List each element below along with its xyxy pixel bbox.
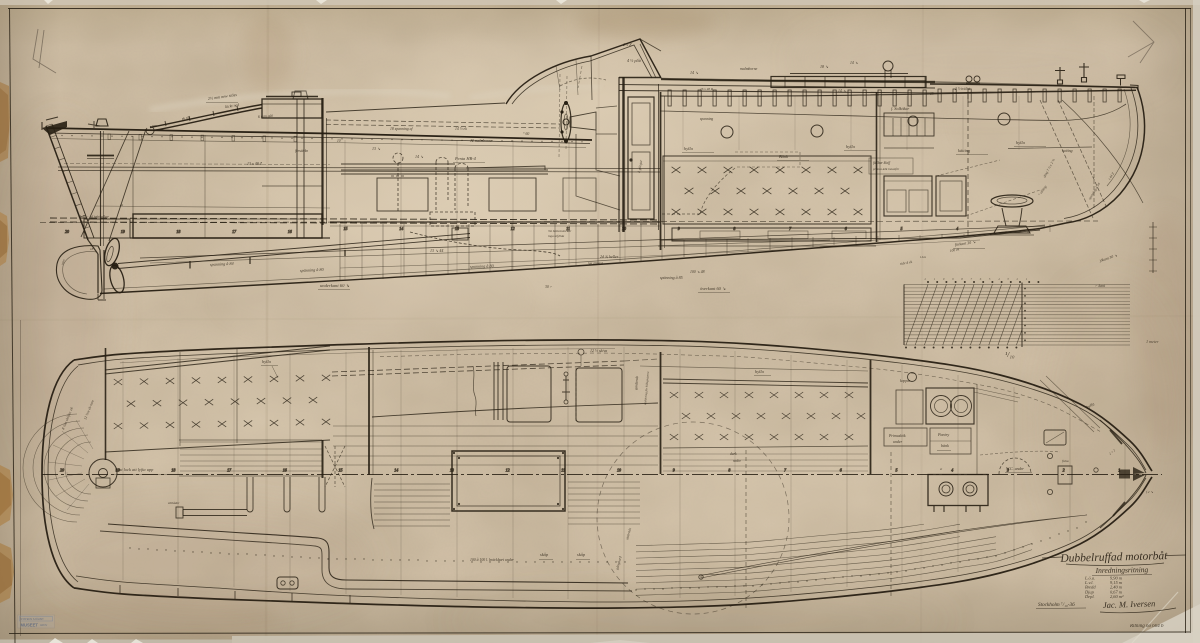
svg-text:10: 10	[337, 139, 341, 143]
svg-text:18: 18	[176, 229, 180, 234]
svg-text:bänk: bänk	[941, 443, 949, 448]
svg-text:14 ↘: 14 ↘	[415, 154, 424, 159]
svg-text:ARKIV: ARKIV	[40, 624, 48, 627]
svg-text:Inredningsritning: Inredningsritning	[1095, 565, 1149, 575]
svg-text:14 ½ ek: 14 ½ ek	[455, 127, 467, 131]
svg-text:kätting: kätting	[958, 148, 971, 153]
svg-text:primus-kök innanför: primus-kök innanför	[872, 167, 900, 171]
svg-text:12: 12	[506, 468, 510, 473]
svg-text:MUSEET: MUSEET	[21, 623, 39, 628]
svg-text:20: 20	[60, 468, 64, 473]
svg-text:2: 2	[1063, 468, 1065, 473]
svg-text:spanning: spanning	[700, 117, 713, 121]
svg-text:13: 13	[930, 92, 934, 96]
svg-text:malmborne: malmborne	[740, 67, 758, 71]
svg-text:8: 8	[733, 226, 735, 231]
svg-text:spanning å 80: spanning å 80	[470, 263, 495, 269]
svg-text:100 ↘ 48: 100 ↘ 48	[690, 270, 705, 274]
svg-text:15: 15	[339, 468, 343, 473]
svg-text:lga ólipted: lga ólipted	[588, 261, 603, 265]
svg-text:3st bottenstockar: 3st bottenstockar	[548, 229, 572, 233]
svg-text:13 x 48 Z: 13 x 48 Z	[247, 161, 263, 166]
svg-text:16: 16	[283, 468, 287, 473]
svg-text:14: 14	[394, 468, 398, 473]
svg-text:16: 16	[288, 229, 292, 234]
svg-text:vatting: vatting	[1062, 149, 1073, 153]
svg-text:14 ↘: 14 ↘	[838, 89, 846, 93]
svg-text:13 ↘: 13 ↘	[372, 146, 381, 151]
svg-text:Primuskök: Primuskök	[888, 434, 906, 438]
svg-text:Löst lock att lyfta upp: Löst lock att lyfta upp	[114, 467, 154, 472]
svg-text:l:10 ⌐ af tvärbalkar: l:10 ⌐ af tvärbalkar	[80, 215, 109, 219]
svg-text:koppar: koppar	[900, 379, 911, 383]
svg-text:Penta HB-4: Penta HB-4	[454, 156, 477, 161]
svg-text:13 ↘ 44: 13 ↘ 44	[430, 248, 443, 253]
svg-text:19: 19	[121, 229, 125, 234]
svg-text:ek: ek	[120, 203, 124, 207]
svg-text:t.h.k: t.h.k	[920, 255, 926, 259]
svg-text:Stockholm ⁷/₁₀-36: Stockholm ⁷/₁₀-36	[1038, 602, 1075, 608]
svg-text:18°: 18°	[90, 247, 95, 251]
svg-text:12 ½ skiva: 12 ½ skiva	[590, 348, 607, 353]
svg-text:5: 5	[901, 226, 903, 231]
svg-text:Bänk: Bänk	[779, 154, 789, 159]
svg-text:STATENS SJÖHIST.: STATENS SJÖHIST.	[21, 617, 45, 621]
svg-text:15: 15	[344, 226, 348, 231]
svg-text:1 meter: 1 meter	[1146, 339, 1159, 344]
svg-text:2½ Z: 2½ Z	[623, 42, 632, 47]
svg-text:underkant 60 ↘: underkant 60 ↘	[320, 283, 350, 288]
svg-text:12: 12	[511, 226, 515, 231]
svg-text:18 spanning af: 18 spanning af	[390, 127, 414, 131]
svg-text:f. Solkökar: f. Solkökar	[891, 106, 910, 111]
svg-text:Ritning no 604 b: Ritning no 604 b	[1129, 624, 1164, 629]
svg-text:14 ↘: 14 ↘	[690, 70, 699, 75]
svg-text:100 å 100 l. bräckbart under: 100 å 100 l. bräckbart under	[470, 557, 514, 562]
svg-text:¹/₁₀: ¹/₁₀	[1005, 350, 1015, 359]
svg-text:6: 6	[845, 226, 847, 231]
svg-text:30 ⌐: 30 ⌐	[545, 285, 553, 289]
svg-text:inga utfyllda: inga utfyllda	[548, 234, 565, 238]
svg-text:10: 10	[622, 226, 626, 231]
svg-text:Jac. M. Iversen: Jac. M. Iversen	[1103, 598, 1156, 610]
svg-text:9: 9	[673, 468, 675, 473]
svg-text:2d ¾ heller: 2d ¾ heller	[600, 254, 619, 259]
svg-text:förstärkn: förstärkn	[295, 149, 308, 153]
svg-text:8: 8	[728, 468, 730, 473]
svg-text:st: st	[940, 467, 942, 471]
svg-text:skåp: skåp	[577, 552, 586, 557]
svg-text:durk: durk	[730, 452, 737, 456]
svg-text:13: 13	[455, 226, 459, 231]
svg-text:14: 14	[399, 226, 403, 231]
svg-text:hylla: hylla	[846, 144, 856, 149]
svg-text:20: 20	[65, 229, 69, 234]
svg-text:överkant 60 ↘: överkant 60 ↘	[700, 286, 726, 291]
svg-text:4 ½ plåt: 4 ½ plåt	[627, 58, 642, 63]
svg-text:18 ↘: 18 ↘	[820, 64, 829, 69]
svg-text:hylla: hylla	[755, 369, 765, 374]
svg-text:° 60: ° 60	[523, 132, 529, 136]
svg-text:fällbar klaff: fällbar klaff	[873, 161, 891, 165]
svg-text:Pantry: Pantry	[937, 432, 949, 437]
svg-text:nedre: nedre	[733, 459, 741, 463]
svg-text:4: 4	[951, 468, 953, 473]
svg-text:f 2 ↘: f 2 ↘	[1146, 490, 1153, 494]
svg-text:vev: vev	[152, 124, 157, 128]
svg-text:ficka: ficka	[1062, 459, 1069, 463]
svg-text:6: 6	[840, 468, 842, 473]
svg-text:spänning å 85: spänning å 85	[660, 275, 683, 280]
svg-text:26 x 48 R: 26 x 48 R	[700, 87, 714, 91]
svg-text:hylla: hylla	[262, 359, 272, 364]
svg-text:hylla: hylla	[1016, 140, 1026, 145]
svg-text:14 ↘: 14 ↘	[850, 61, 858, 65]
svg-text:under: under	[893, 440, 903, 444]
svg-text:hylla: hylla	[684, 146, 694, 151]
svg-text:2 ½ trälist: 2 ½ trälist	[955, 87, 971, 91]
svg-text:10: 10	[617, 468, 621, 473]
svg-text:4: 4	[956, 226, 958, 231]
svg-text:skåp: skåp	[540, 552, 549, 557]
svg-text:9: 9	[678, 226, 680, 231]
svg-text:Depl.: Depl.	[1084, 594, 1095, 599]
svg-text:sittlådor: sittlådor	[168, 500, 180, 505]
svg-text:18: 18	[171, 468, 175, 473]
svg-text:5: 5	[896, 468, 898, 473]
svg-text:12 malmborne: 12 malmborne	[470, 139, 492, 143]
svg-text:W.C. under: W.C. under	[1006, 466, 1024, 471]
